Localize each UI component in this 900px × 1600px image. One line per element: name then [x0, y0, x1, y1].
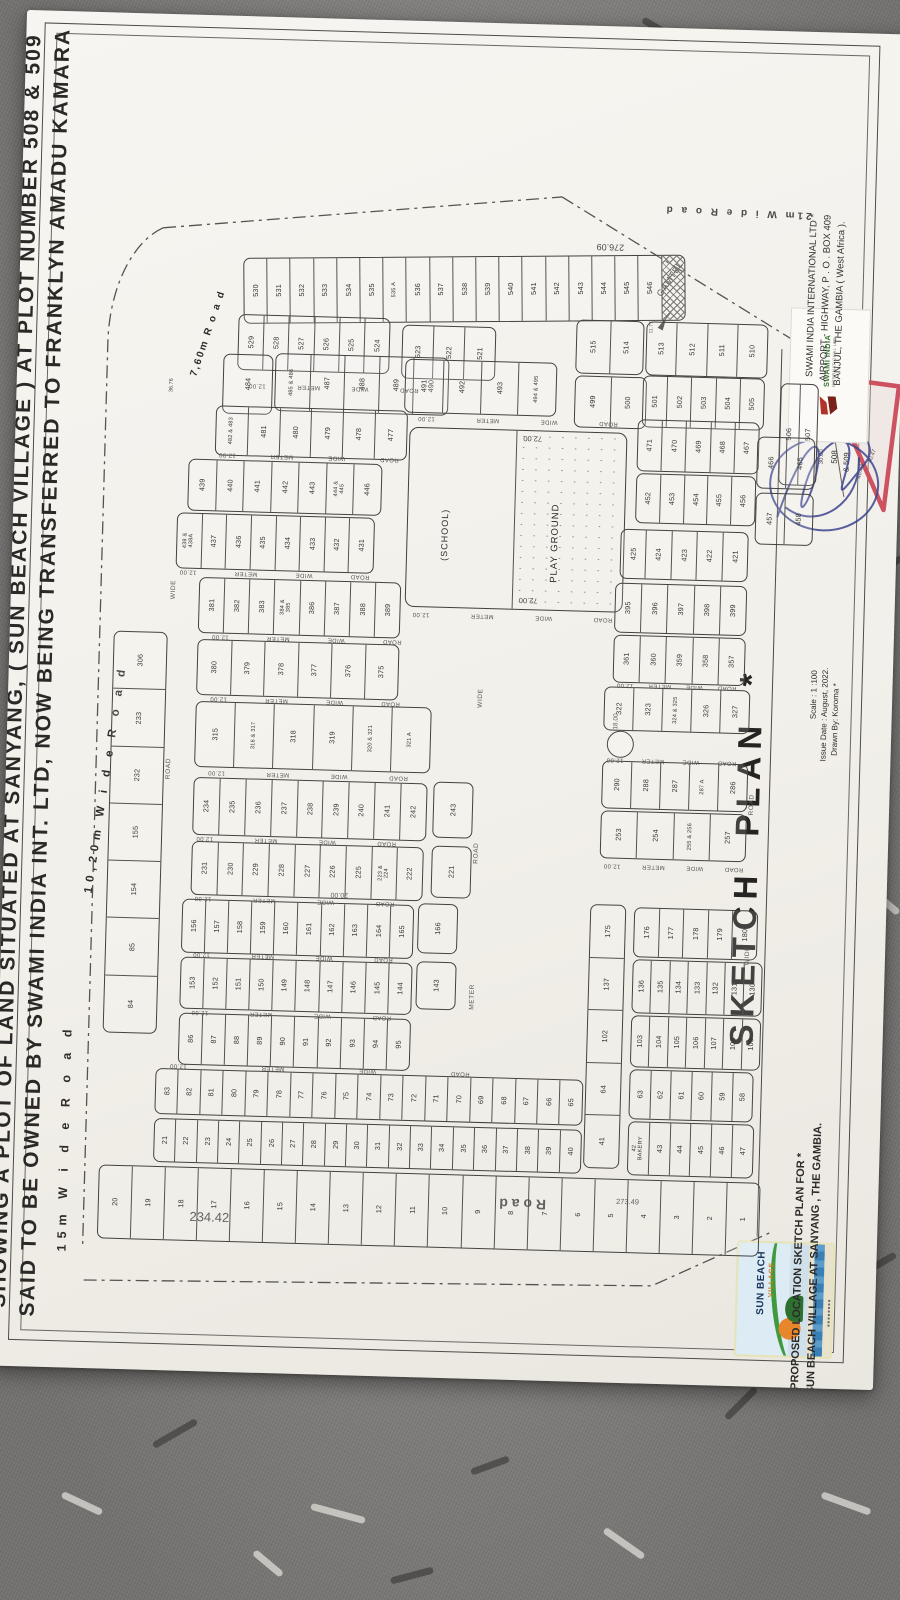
- road-word: METER: [265, 697, 288, 704]
- plot-cell: 26: [260, 1122, 283, 1165]
- plot-cell: 381: [199, 578, 225, 633]
- road-word: METER: [641, 757, 664, 764]
- road-word: ROAD: [375, 900, 394, 907]
- plot-cell: 358: [691, 638, 718, 685]
- plot-cell: 41: [584, 1114, 619, 1168]
- plot-cell: 82: [177, 1070, 201, 1115]
- plot-cell: 78: [267, 1072, 291, 1117]
- plot-cell: 77: [289, 1073, 313, 1118]
- plot-cell: 380: [197, 640, 231, 695]
- plot-cell: 542: [545, 257, 569, 321]
- plot-cell: 143: [416, 962, 455, 1009]
- plot-cell: 230: [216, 843, 243, 896]
- road-word: ROAD: [381, 700, 400, 707]
- plot-strip-s243: 243: [432, 782, 474, 839]
- plot-cell: 146: [341, 962, 365, 1013]
- plot-cell: 61: [669, 1071, 691, 1120]
- sunbeach-logo-tagline: ■ ■ ■ ■ ■ ■ ■ ■: [826, 1300, 832, 1327]
- plot-cell: 88: [224, 1015, 248, 1066]
- plot-strip-s153: 153152151150149148147146145144: [179, 957, 412, 1015]
- plot-cell: 222: [396, 848, 423, 901]
- road-word: 12.00: [179, 568, 196, 574]
- plot-cell: 2: [691, 1182, 726, 1255]
- plot-cell: 482 & 483: [216, 406, 248, 455]
- road-word: 12.00: [208, 769, 225, 775]
- triangle-plot-number: 508: [830, 450, 839, 464]
- plot-cell: 357: [717, 638, 744, 685]
- plot-cell: 3: [658, 1181, 693, 1254]
- plot-cell: 537: [429, 257, 453, 321]
- scale-label: Scale : 1 :100: [809, 670, 819, 719]
- plot-cell: 543: [568, 256, 592, 320]
- plot-cell: 10: [427, 1175, 462, 1248]
- plot-cell: 89: [247, 1015, 271, 1066]
- plot-cell: 148: [295, 961, 319, 1012]
- plot-cell: 513: [646, 322, 677, 375]
- plot-cell: 536: [406, 257, 430, 321]
- fabric-fiber-mark: [724, 1386, 759, 1421]
- plot-cell: 155: [108, 802, 162, 861]
- plot-cell: 177: [658, 909, 684, 958]
- plot-cell: 535: [359, 258, 383, 322]
- plot-cell: 32: [388, 1125, 411, 1168]
- plot-cell: 315: [195, 702, 235, 767]
- plot-cell: 321 A: [390, 707, 431, 772]
- plot-cell: 492: [442, 361, 481, 414]
- plot-cell: 514: [609, 321, 644, 374]
- plot-cell: 83: [155, 1069, 178, 1114]
- road-word: METER: [648, 683, 671, 690]
- plot-cell: 75: [334, 1074, 358, 1119]
- road-word: 12.00: [191, 1009, 208, 1015]
- road-word: ROAD: [593, 616, 612, 623]
- plot-cell: 456: [730, 477, 755, 526]
- plot-cell: 479: [310, 409, 343, 458]
- plot-cell: 535 A: [382, 258, 406, 322]
- plot-cell: 91: [293, 1017, 317, 1068]
- road-word: WIDE: [327, 637, 344, 643]
- plot-cell: 106: [685, 1018, 705, 1068]
- plot-cell: 532: [290, 258, 314, 322]
- plot-cell: 236: [244, 779, 271, 836]
- plot-strip-s471: 471470469468467: [636, 419, 759, 474]
- plot-strip-s234: 234235236237238239240241242: [192, 777, 428, 842]
- plot-cell: 239: [322, 781, 349, 838]
- plot-cell: 108: [722, 1019, 742, 1069]
- road-word: 12.00: [606, 756, 623, 762]
- road-word: METER: [253, 897, 276, 904]
- plot-cell: 442: [270, 462, 299, 513]
- plot-cell: 6: [559, 1178, 594, 1251]
- plot-cell: 433: [299, 517, 325, 572]
- plot-strip-s438: 438 & 438A437436435434433432431: [176, 512, 375, 574]
- plot-cell: 378: [263, 642, 298, 697]
- road-word: METER: [261, 1065, 284, 1072]
- plot-cell: 361: [614, 636, 640, 683]
- plot-cell: 399: [719, 586, 747, 635]
- road-word: 12.00: [616, 682, 633, 688]
- plot-cell: 320 & 321: [351, 706, 392, 771]
- plot-strip-s322: 322323324 & 325326327: [603, 686, 750, 734]
- plot-cell: 431: [348, 518, 374, 573]
- plot-cell: 481: [247, 407, 280, 456]
- plot-cell: 18: [163, 1167, 198, 1240]
- road-word: ROAD: [389, 774, 408, 781]
- plot-cell: 511: [706, 324, 738, 377]
- plot-cell: 153: [180, 958, 203, 1009]
- plot-cell: 544: [591, 256, 615, 320]
- plot-strip-s231: 231230229228227226225223 & 224222: [190, 841, 423, 901]
- plot-strip-lcol: 3062332321551548584: [103, 631, 168, 1034]
- road-word: 12.00: [603, 862, 620, 868]
- road-word: ROAD: [372, 1014, 391, 1021]
- plot-cell: 454: [683, 475, 708, 524]
- plot-strip-s290: 290288287287 A286: [601, 760, 748, 812]
- plot-cell: 322: [604, 687, 633, 730]
- road-word: ROAD: [350, 573, 369, 580]
- plot-strip-s452: 452453454455456: [635, 473, 756, 526]
- plot-cell: 443: [297, 463, 326, 514]
- plot-cell: 105: [667, 1017, 687, 1067]
- plot-cell: 33: [409, 1126, 432, 1169]
- plot-cell: 512: [675, 323, 707, 376]
- plot-cell: 471: [637, 420, 662, 471]
- plot-cell: 85: [105, 917, 159, 976]
- school-half: (SCHOOL): [406, 428, 518, 609]
- plot-cell: 69: [469, 1078, 493, 1123]
- plot-cell: 16: [229, 1169, 264, 1242]
- plot-cell: 74: [356, 1075, 380, 1120]
- plot-cell: 30: [345, 1124, 368, 1167]
- plot-cell: 382: [223, 579, 250, 634]
- plot-cell: 44: [668, 1123, 690, 1176]
- plot-cell: 287: [659, 763, 689, 810]
- plot-strip-s466: 466465: [756, 436, 815, 490]
- plot-cell: 107: [704, 1018, 724, 1068]
- plot-cell: 237: [270, 780, 297, 837]
- plot-cell: 42 BAKERY: [628, 1122, 649, 1175]
- road-word: 12.00: [193, 951, 210, 957]
- plot-cell: 22: [174, 1119, 197, 1162]
- plot-cell: 59: [710, 1072, 732, 1121]
- plot-strip-r63: 636261605958: [628, 1069, 753, 1122]
- plot-cell: 175: [590, 905, 625, 958]
- plot-cell: 158: [227, 901, 252, 954]
- plot-cell: 11: [394, 1174, 429, 1247]
- road-word: WIDE: [295, 572, 312, 578]
- plot-cell: 423: [670, 531, 697, 580]
- plot-cell: 396: [640, 584, 668, 633]
- plot-strip-s380: 380379378377376375: [196, 639, 399, 701]
- plot-cell: 36: [473, 1128, 496, 1171]
- plot-cell: 31: [366, 1125, 389, 1168]
- plot-cell: 515: [576, 320, 610, 373]
- plot-strip-s156: 156157158159160161162163164165: [181, 899, 414, 959]
- plot-cell: 388: [348, 582, 375, 637]
- plot-cell: 149: [272, 960, 296, 1011]
- plot-cell: 90: [270, 1016, 294, 1067]
- plot-cell: 133: [687, 962, 707, 1014]
- plot-cell: 161: [296, 903, 321, 956]
- plot-cell: 439: [188, 460, 216, 511]
- road-word: 12.00: [196, 835, 213, 841]
- plot-cell: 533: [313, 258, 337, 322]
- plot-cell: 178: [682, 910, 708, 959]
- plot-cell: 63: [629, 1070, 650, 1119]
- road-word: WIDE: [326, 699, 343, 705]
- plot-cell: 440: [215, 460, 244, 511]
- road-word: METER: [267, 635, 290, 642]
- fabric-fiber-mark: [61, 1491, 104, 1516]
- plot-cell: 465: [785, 438, 815, 489]
- road-word: ROAD: [724, 866, 743, 873]
- road-word: 12.00: [212, 633, 229, 639]
- plot-cell: 455: [706, 476, 731, 525]
- plot-cell: 232: [110, 745, 164, 804]
- plot-strip-s166: 166: [417, 903, 458, 954]
- plot-cell: 531: [266, 258, 290, 322]
- plot-cell: 359: [665, 637, 692, 684]
- plot-cell: 478: [342, 410, 375, 459]
- plot-cell: 290: [602, 761, 631, 808]
- road-word: METER: [254, 837, 277, 844]
- plot-cell: 223 & 224: [370, 847, 397, 900]
- plot-cell: 156: [182, 900, 206, 953]
- plot-cell: 162: [319, 903, 344, 956]
- plot-cell: 229: [242, 843, 269, 896]
- road-word: ROAD: [599, 420, 618, 427]
- plot-cell: 360: [639, 636, 666, 683]
- plot-cell: 540: [498, 257, 522, 321]
- plot-cell: 477: [374, 411, 407, 460]
- plot-cell: 425: [620, 530, 646, 579]
- plot-cell: 15: [262, 1170, 297, 1243]
- plot-cell: 71: [424, 1076, 448, 1121]
- road-word: METER: [476, 417, 499, 424]
- plot-cell: 145: [364, 963, 388, 1014]
- road-word: WIDE: [317, 898, 334, 904]
- plot-cell: 9: [460, 1176, 495, 1249]
- plot-cell: 29: [324, 1124, 347, 1167]
- plot-cell: 21: [154, 1119, 176, 1162]
- plot-cell: 38: [516, 1129, 539, 1172]
- photo-of-sketch-plan: { "title": { "line1": "SHOWING A PLOT OF…: [0, 0, 900, 1600]
- plot-cell: 151: [225, 959, 249, 1010]
- road-word: METER: [251, 953, 274, 960]
- plot-cell: 70: [446, 1077, 470, 1122]
- plot-cell: 288: [630, 762, 660, 809]
- plot-cell: 226: [319, 845, 346, 898]
- fabric-fiber-mark: [252, 1549, 284, 1578]
- plot-cell: 79: [244, 1071, 268, 1116]
- plot-cell: 35: [452, 1127, 475, 1170]
- plot-cell: 132: [705, 962, 725, 1014]
- plot-cell: 165: [389, 905, 414, 958]
- plot-cell: 160: [273, 902, 298, 955]
- playground-half: PLAY GROUND: [512, 431, 626, 612]
- plot-strip-s253: 253254255 & 256257: [600, 810, 747, 862]
- plot-cell: 47: [731, 1125, 753, 1178]
- plot-cell: 324 & 325: [661, 689, 691, 732]
- plot-strip-s221: 221: [430, 846, 471, 899]
- plot-cell: 377: [297, 643, 332, 698]
- road-word: METER: [471, 613, 494, 620]
- plot-cell: 228: [267, 844, 294, 897]
- plot-cell: 12: [361, 1173, 396, 1246]
- plot-strip-s425: 425424423422421: [619, 529, 748, 583]
- plot-cell: 130: [742, 963, 762, 1015]
- plot-cell: 384 & 385: [273, 580, 300, 635]
- road-word-vertical: ROAD: [748, 794, 756, 815]
- document-content: SHOWING A PLOT OF LAND SITUATED AT SANYA…: [0, 10, 900, 1390]
- plot-cell: 144: [387, 963, 411, 1014]
- road-word: WIDE: [359, 1068, 376, 1074]
- plot-cell: 163: [342, 904, 367, 957]
- plot-cell: 545: [614, 256, 638, 320]
- plot-cell: 24: [217, 1121, 240, 1164]
- dimension-36-76: 36.76: [168, 378, 174, 392]
- plot-cell: 43: [648, 1123, 670, 1176]
- plot-cell: 432: [323, 517, 349, 572]
- triangle-plot-number2: & 509: [842, 452, 852, 472]
- plot-cell: 434: [274, 516, 300, 571]
- plot-cell: 234: [193, 778, 219, 835]
- plot-cell: 20: [98, 1165, 132, 1238]
- road-word: WIDE: [351, 385, 368, 391]
- plot-cell: 457: [755, 493, 784, 544]
- plot-cell: 510: [736, 325, 768, 378]
- plot-cell: 76: [312, 1073, 336, 1118]
- plot-cell: 254: [636, 812, 674, 859]
- plot-cell: 13: [328, 1172, 363, 1245]
- plot-cell: 438 & 438A: [177, 513, 202, 568]
- plot-cell: 109: [740, 1019, 760, 1069]
- road-word: METER: [234, 570, 257, 577]
- plot-cell: 441: [242, 461, 271, 512]
- plot-cell: 40: [558, 1130, 581, 1173]
- road-word-vertical: WIDE: [744, 946, 752, 966]
- road-word: METER: [270, 453, 293, 460]
- plot-cell: 389: [374, 583, 401, 638]
- plot-cell: 231: [191, 842, 217, 895]
- plot-strip-rcol: 1751371026441: [583, 904, 626, 1169]
- plot-strip-r42: 42 BAKERY4344454647: [627, 1121, 754, 1178]
- plot-cell: 72: [401, 1076, 425, 1121]
- plot-cell: 466: [757, 438, 786, 489]
- road-word: WIDE: [535, 614, 552, 620]
- plot-cell: 147: [318, 961, 342, 1012]
- plot-cell: 157: [204, 900, 229, 953]
- plot-cell: 243: [433, 783, 472, 838]
- plot-strip-s86: 86878889909192939495: [178, 1013, 411, 1071]
- road-word: 12.00: [219, 451, 236, 457]
- road-word: WIDE: [314, 1012, 331, 1018]
- road-word: 12.00: [412, 611, 429, 617]
- plot-cell: 326: [690, 690, 720, 733]
- plot-strip-s395: 395396397398399: [614, 583, 747, 637]
- plot-cell: 541: [522, 257, 546, 321]
- plot-cell: 86: [179, 1014, 202, 1065]
- plot-cell: 383: [248, 579, 275, 634]
- plot-strip-s361: 361360359358357: [613, 635, 746, 687]
- plot-cell: 92: [316, 1017, 340, 1068]
- plot-cell: 319: [312, 705, 353, 770]
- road-word: WIDE: [330, 773, 347, 779]
- plot-strip-s381: 381382383384 & 385386387388389: [198, 577, 401, 639]
- plot-cell: 7: [526, 1177, 561, 1250]
- road-word-vertical: ROAD: [472, 843, 480, 864]
- school-label: (SCHOOL): [439, 509, 450, 561]
- plot-cell: 233: [112, 688, 166, 747]
- plot-cell: 27: [281, 1122, 304, 1165]
- plot-cell: 444 & 445: [325, 463, 354, 514]
- plot-cell: 34: [430, 1127, 453, 1170]
- plot-cell: 28: [302, 1123, 325, 1166]
- fabric-fiber-mark: [152, 1418, 199, 1449]
- plot-cell: 94: [362, 1019, 386, 1070]
- plot-cell: 467: [733, 423, 759, 474]
- plot-cell: 136: [632, 960, 651, 1012]
- plot-cell: 235: [218, 779, 245, 836]
- plot-cell: 73: [379, 1075, 403, 1120]
- plot-cell: 103: [631, 1016, 650, 1066]
- plot-cell: 316 & 317: [233, 703, 274, 768]
- road-word: WIDE: [328, 454, 345, 460]
- plot-cell: 241: [373, 783, 400, 840]
- road-word: ROAD: [374, 956, 393, 963]
- plot-cell: 221: [432, 847, 471, 898]
- plot-cell: 375: [364, 645, 399, 700]
- plot-strip-s491: 491492493494 & 495: [404, 359, 557, 417]
- plot-strip-s143: 143: [415, 961, 456, 1010]
- plot-cell: 150: [249, 960, 273, 1011]
- plot-cell: 179: [707, 910, 733, 959]
- plot-cell: 395: [615, 584, 642, 633]
- plot-cell: 436: [225, 515, 251, 570]
- fabric-fiber-mark: [820, 1491, 871, 1515]
- plot-cell: 253: [601, 811, 638, 858]
- plot-cell: 534: [336, 258, 360, 322]
- road-word-vertical: WIDE: [477, 688, 485, 708]
- gamtel-hatched-plot: [661, 256, 685, 320]
- plot-cell: 546: [638, 256, 662, 320]
- plot-strip-s315: 315316 & 317318319320 & 321321 A: [194, 701, 432, 774]
- plot-cell: 4: [625, 1180, 660, 1253]
- plot-cell: 422: [696, 532, 723, 581]
- plot-cell: 306: [113, 632, 167, 690]
- road-word: 12.00: [249, 382, 266, 388]
- sunbeach-logo-name: SUN BEACH: [755, 1251, 768, 1315]
- plot-strip-r136: 136135134133132131130: [631, 959, 762, 1017]
- road-word: ROAD: [380, 456, 399, 463]
- plot-cell: 240: [347, 782, 374, 839]
- road-word: 12.00: [418, 415, 435, 421]
- road-word: 12.00: [194, 895, 211, 901]
- plot-cell: 64: [585, 1062, 620, 1116]
- plot-cell: 398: [693, 586, 721, 635]
- fabric-fiber-mark: [602, 1527, 645, 1560]
- plot-strip-s530: 530531532533534535535 A53653753853954054…: [243, 255, 685, 324]
- plot-cell: 257: [708, 814, 746, 861]
- school-playground-block: (SCHOOL) PLAY GROUND: [405, 427, 628, 613]
- plot-cell: 166: [418, 904, 457, 953]
- plot-cell: 19: [130, 1166, 165, 1239]
- sunbeach-logo-sub: VILLAGE: [767, 1262, 775, 1297]
- plot-cell: 470: [661, 421, 687, 472]
- plot-cell: 102: [587, 1009, 622, 1063]
- plot-cell: 287 A: [688, 764, 718, 811]
- plot-cell: 62: [649, 1071, 671, 1120]
